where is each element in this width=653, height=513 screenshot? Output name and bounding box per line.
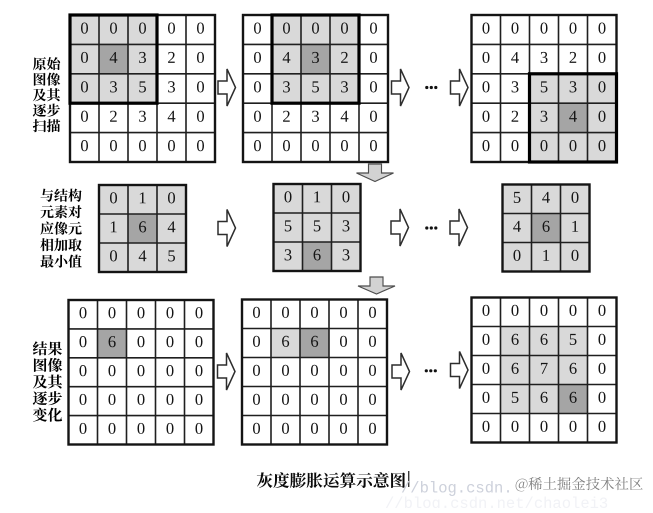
svg-text://blog.csdn.net/chaolei3: //blog.csdn.net/chaolei3 <box>385 495 608 508</box>
